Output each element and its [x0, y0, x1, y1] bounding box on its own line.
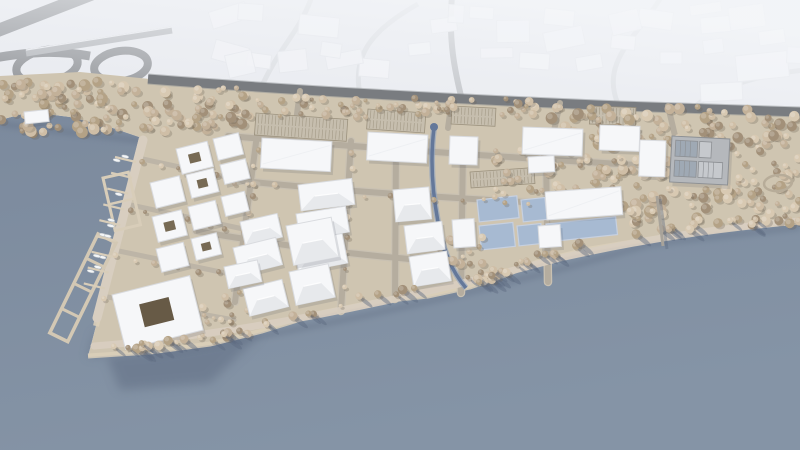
- tree-highlight: [397, 108, 400, 111]
- tree-highlight: [102, 296, 105, 299]
- tree-highlight: [783, 214, 786, 217]
- tree-highlight: [349, 150, 352, 153]
- tree-highlight: [306, 311, 309, 314]
- tree-highlight: [634, 183, 637, 186]
- tree-highlight: [772, 185, 775, 188]
- tree-highlight: [123, 115, 126, 118]
- tree-highlight: [540, 188, 543, 191]
- tree-highlight: [589, 134, 592, 137]
- tree-highlight: [118, 88, 122, 92]
- tree-highlight: [578, 163, 581, 166]
- tree-highlight: [237, 290, 239, 292]
- tree-highlight: [133, 88, 138, 93]
- tree-highlight: [690, 221, 694, 225]
- building-flat: [24, 109, 49, 123]
- tree-highlight: [222, 294, 226, 298]
- tree-highlight: [593, 171, 598, 176]
- tree-highlight: [734, 133, 739, 138]
- tree-highlight: [149, 126, 152, 129]
- tree-highlight: [684, 192, 688, 196]
- tree-highlight: [783, 163, 786, 166]
- tree-highlight: [747, 199, 751, 203]
- tree-highlight: [781, 141, 785, 145]
- tree-highlight: [587, 105, 591, 109]
- tree-highlight: [616, 175, 619, 178]
- tree-highlight: [344, 267, 346, 269]
- tree-highlight: [450, 104, 454, 108]
- tree-highlight: [354, 114, 358, 118]
- tree-highlight: [576, 239, 580, 243]
- building-flat: [599, 125, 640, 151]
- tree-highlight: [161, 127, 166, 132]
- tree-highlight: [783, 207, 786, 210]
- tree-highlight: [234, 86, 237, 89]
- tree-highlight: [466, 275, 468, 277]
- tree-highlight: [748, 191, 752, 195]
- tree-highlight: [527, 202, 529, 204]
- tree-highlight: [479, 260, 483, 264]
- tree-highlight: [218, 115, 221, 118]
- tree-highlight: [573, 185, 576, 188]
- tree-highlight: [343, 285, 345, 287]
- tree-highlight: [282, 108, 286, 112]
- tree-highlight: [474, 275, 479, 280]
- tree-highlight: [32, 95, 36, 99]
- tree-highlight: [611, 176, 615, 180]
- tree-highlight: [597, 165, 602, 170]
- tree-highlight: [105, 106, 108, 109]
- tree-highlight: [91, 118, 96, 123]
- tree-highlight: [772, 161, 775, 164]
- tree-highlight: [784, 134, 787, 137]
- tree-highlight: [164, 100, 169, 105]
- tree-highlight: [230, 313, 233, 316]
- tree-highlight: [769, 131, 774, 136]
- tree-highlight: [525, 260, 528, 263]
- tree-highlight: [631, 199, 637, 205]
- tree-highlight: [793, 170, 796, 173]
- tree-highlight: [143, 210, 145, 212]
- tree-highlight: [761, 216, 766, 221]
- tree-highlight: [207, 99, 211, 103]
- tree-highlight: [788, 122, 793, 127]
- tree-highlight: [559, 162, 562, 165]
- tree-highlight: [745, 138, 750, 143]
- tree-highlight: [351, 104, 353, 106]
- tree-highlight: [746, 113, 751, 118]
- tree-highlight: [422, 109, 426, 113]
- tree-highlight: [80, 80, 86, 86]
- tree-highlight: [227, 113, 232, 118]
- tree-highlight: [666, 105, 671, 110]
- tree-highlight: [210, 337, 213, 340]
- building-flat: [260, 138, 331, 172]
- tree-highlight: [2, 96, 5, 99]
- tree-highlight: [461, 255, 463, 257]
- tree-highlight: [139, 341, 142, 344]
- tree-highlight: [119, 82, 125, 88]
- building-roof: [538, 224, 561, 247]
- tree-highlight: [585, 158, 588, 161]
- tree-highlight: [71, 110, 74, 113]
- tree-highlight: [423, 103, 427, 107]
- tree-highlight: [743, 106, 748, 111]
- tree-highlight: [221, 86, 224, 89]
- tree-highlight: [689, 203, 692, 206]
- tree-highlight: [762, 120, 766, 124]
- tree-highlight: [602, 104, 607, 109]
- tree-highlight: [264, 322, 267, 325]
- tree-highlight: [339, 304, 341, 306]
- tree-highlight: [715, 195, 719, 199]
- tree-highlight: [133, 345, 138, 350]
- tree-highlight: [763, 132, 768, 137]
- tree-highlight: [20, 129, 23, 132]
- tree-highlight: [399, 286, 404, 291]
- tree-highlight: [77, 127, 83, 133]
- tree-highlight: [293, 94, 297, 98]
- tree-highlight: [128, 208, 131, 211]
- tree-highlight: [727, 218, 730, 221]
- tree-highlight: [543, 251, 546, 254]
- tree-highlight: [376, 104, 378, 106]
- parking-structure: [669, 136, 733, 189]
- tree-highlight: [93, 78, 98, 83]
- tree-highlight: [557, 105, 560, 108]
- building-pitched: [393, 187, 432, 222]
- tree-highlight: [242, 110, 246, 114]
- tree-highlight: [701, 113, 707, 119]
- tree-highlight: [251, 182, 254, 185]
- tree-highlight: [196, 106, 200, 110]
- tree-highlight: [52, 87, 57, 92]
- tree-highlight: [718, 134, 721, 137]
- tree-highlight: [448, 237, 452, 241]
- building-roof: [452, 218, 476, 247]
- tree-highlight: [776, 182, 781, 187]
- tree-highlight: [155, 342, 160, 347]
- tree-highlight: [196, 270, 199, 273]
- tree-highlight: [200, 109, 204, 113]
- tree-highlight: [530, 111, 534, 115]
- building-flat: [522, 127, 583, 156]
- tree-highlight: [82, 121, 86, 125]
- tree-highlight: [98, 89, 101, 92]
- masterplan-svg: [0, 0, 800, 450]
- building-roof: [639, 140, 666, 177]
- tree-highlight: [375, 291, 379, 295]
- tree-highlight: [40, 129, 44, 133]
- tree-highlight: [642, 111, 648, 117]
- tree-highlight: [527, 186, 531, 190]
- tree-highlight: [132, 102, 135, 105]
- tree-highlight: [101, 127, 104, 130]
- tree-highlight: [12, 111, 15, 114]
- tree-highlight: [152, 261, 155, 264]
- tree-highlight: [526, 98, 530, 102]
- tree-highlight: [621, 109, 627, 115]
- tree-highlight: [738, 199, 743, 204]
- tree-highlight: [278, 114, 280, 116]
- tree-highlight: [200, 304, 204, 308]
- building-flat: [545, 187, 623, 220]
- tree-highlight: [38, 90, 43, 95]
- tree-highlight: [504, 169, 508, 173]
- tree-highlight: [670, 224, 672, 226]
- building-flat: [452, 218, 476, 247]
- tree-highlight: [675, 104, 681, 110]
- tree-highlight: [237, 328, 240, 331]
- tree-highlight: [753, 217, 756, 220]
- tree-highlight: [515, 176, 519, 180]
- tree-highlight: [353, 97, 357, 101]
- tree-highlight: [228, 320, 230, 322]
- tree-highlight: [603, 166, 608, 171]
- structure-panel: [699, 141, 712, 158]
- tree-highlight: [357, 108, 360, 111]
- tree-highlight: [632, 230, 637, 235]
- tree-highlight: [445, 107, 448, 110]
- tree-highlight: [350, 166, 353, 169]
- tree-highlight: [492, 194, 495, 197]
- tree-highlight: [724, 194, 729, 199]
- tree-highlight: [625, 115, 631, 121]
- tree-highlight: [508, 108, 511, 111]
- tree-highlight: [757, 148, 761, 152]
- tree-highlight: [714, 189, 720, 195]
- tree-highlight: [309, 105, 312, 108]
- tree-highlight: [256, 98, 258, 100]
- tree-highlight: [557, 185, 562, 190]
- tree-highlight: [722, 110, 725, 113]
- tree-highlight: [167, 119, 170, 122]
- tree-highlight: [750, 167, 753, 170]
- tree-highlight: [322, 111, 326, 115]
- tree-highlight: [490, 267, 494, 271]
- tree-highlight: [435, 101, 437, 103]
- tree-highlight: [140, 159, 143, 162]
- tree-highlight: [696, 217, 700, 221]
- tree-highlight: [203, 122, 207, 126]
- tree-highlight: [263, 107, 266, 110]
- tree-highlight: [795, 155, 799, 159]
- tree-highlight: [159, 164, 162, 167]
- tree-highlight: [387, 104, 391, 108]
- tree-highlight: [152, 117, 156, 121]
- tree-highlight: [600, 174, 603, 177]
- tree-highlight: [257, 148, 260, 151]
- tree-highlight: [217, 88, 220, 91]
- tree-highlight: [504, 97, 507, 100]
- tree-highlight: [730, 122, 734, 126]
- tree-highlight: [494, 149, 497, 152]
- structure-panel: [674, 160, 697, 177]
- tree-highlight: [55, 125, 59, 129]
- tree-highlight: [756, 145, 759, 148]
- tree-highlight: [500, 113, 503, 116]
- tree-highlight: [226, 102, 230, 106]
- tree-highlight: [790, 112, 795, 117]
- tree-highlight: [205, 320, 208, 323]
- tree-highlight: [140, 124, 144, 128]
- tree-highlight: [346, 110, 349, 113]
- tree-highlight: [180, 335, 184, 339]
- tree-highlight: [144, 107, 149, 112]
- tree-highlight: [702, 204, 707, 209]
- building-flat: [449, 136, 478, 165]
- tree-highlight: [363, 195, 365, 197]
- tree-highlight: [665, 137, 669, 141]
- tree-highlight: [364, 99, 366, 101]
- tree-highlight: [743, 162, 746, 165]
- tree-highlight: [412, 95, 416, 99]
- tree-highlight: [489, 273, 493, 277]
- tree-highlight: [98, 100, 102, 104]
- tree-highlight: [437, 107, 439, 109]
- tree-highlight: [356, 293, 360, 297]
- tree-highlight: [394, 103, 397, 106]
- tree-highlight: [786, 219, 791, 224]
- tree-highlight: [338, 102, 341, 105]
- tree-highlight: [595, 136, 599, 140]
- tree-highlight: [607, 112, 612, 117]
- tree-highlight: [561, 122, 567, 128]
- tree-highlight: [467, 261, 470, 264]
- tree-highlight: [775, 202, 778, 205]
- tree-highlight: [193, 96, 197, 100]
- tree-highlight: [469, 98, 472, 101]
- tree-highlight: [77, 87, 80, 90]
- water-basin: [521, 197, 547, 221]
- tree-highlight: [501, 179, 504, 182]
- building-pitched: [404, 221, 445, 253]
- tree-highlight: [486, 273, 489, 276]
- tree-highlight: [699, 194, 704, 199]
- tree-highlight: [194, 86, 198, 90]
- tree-highlight: [796, 198, 800, 202]
- tree-highlight: [751, 179, 755, 183]
- tree-highlight: [503, 269, 507, 273]
- tree-highlight: [394, 292, 397, 295]
- tree-highlight: [534, 251, 538, 255]
- tree-highlight: [72, 91, 76, 95]
- tree-highlight: [202, 313, 204, 315]
- tree-highlight: [714, 219, 719, 224]
- tree-highlight: [40, 100, 44, 104]
- tree-highlight: [749, 221, 753, 225]
- tree-highlight: [250, 194, 253, 197]
- tree-highlight: [126, 345, 129, 348]
- tree-highlight: [186, 122, 190, 126]
- tree-highlight: [494, 187, 497, 190]
- tree-highlight: [364, 115, 367, 118]
- tree-highlight: [735, 151, 738, 154]
- tree-highlight: [660, 123, 665, 128]
- tree-highlight: [612, 159, 615, 162]
- tree-highlight: [325, 107, 328, 110]
- tree-highlight: [299, 112, 302, 115]
- tree-highlight: [547, 113, 553, 119]
- tree-highlight: [775, 217, 779, 221]
- tree-highlight: [302, 94, 306, 98]
- tree-highlight: [766, 209, 771, 214]
- tree-highlight: [172, 111, 177, 116]
- tree-highlight: [5, 90, 10, 95]
- tree-highlight: [279, 98, 283, 102]
- tree-highlight: [193, 115, 197, 119]
- building-roof: [599, 125, 640, 151]
- tree-highlight: [596, 117, 599, 120]
- canal-head-pond: [430, 123, 438, 131]
- tree-highlight: [507, 178, 511, 182]
- tree-highlight: [251, 164, 253, 166]
- tree-highlight: [649, 192, 655, 198]
- building-roof: [24, 109, 49, 123]
- tree-highlight: [258, 102, 261, 105]
- tree-highlight: [515, 100, 519, 104]
- tree-highlight: [448, 97, 452, 101]
- tree-highlight: [12, 83, 16, 87]
- tree-highlight: [519, 259, 522, 262]
- tree-highlight: [212, 316, 214, 318]
- tree-highlight: [412, 286, 415, 289]
- tree-highlight: [775, 120, 781, 126]
- tree-highlight: [219, 317, 222, 320]
- tree-highlight: [178, 122, 182, 126]
- tree-highlight: [682, 121, 686, 125]
- tree-highlight: [736, 175, 740, 179]
- tree-highlight: [161, 88, 166, 93]
- tree-highlight: [554, 252, 556, 254]
- tree-highlight: [151, 110, 155, 114]
- tree-highlight: [17, 80, 22, 85]
- tree-highlight: [116, 120, 119, 123]
- tree-highlight: [62, 105, 65, 108]
- tree-highlight: [104, 115, 107, 118]
- tree-highlight: [478, 270, 481, 273]
- tree-highlight: [89, 125, 95, 131]
- tree-highlight: [217, 270, 220, 273]
- tree-highlight: [710, 123, 714, 127]
- masterplan-render: [0, 0, 800, 450]
- tree-highlight: [636, 216, 639, 219]
- tree-highlight: [416, 112, 419, 115]
- tree-highlight: [695, 104, 698, 107]
- tree-highlight: [116, 127, 119, 130]
- tree-highlight: [320, 96, 324, 100]
- tree-highlight: [761, 196, 764, 199]
- tree-highlight: [553, 182, 558, 187]
- tree-highlight: [593, 180, 597, 184]
- tree-highlight: [535, 190, 537, 192]
- tree-highlight: [649, 134, 652, 137]
- tree-highlight: [74, 101, 78, 105]
- tree-highlight: [164, 337, 169, 342]
- tree-highlight: [716, 123, 720, 127]
- tree-highlight: [765, 115, 769, 119]
- building-roof: [528, 156, 555, 173]
- building-flat: [367, 132, 428, 163]
- tree-highlight: [633, 156, 637, 160]
- tree-highlight: [755, 188, 759, 192]
- tree-highlight: [617, 155, 619, 157]
- tree-highlight: [482, 198, 484, 200]
- tree-highlight: [245, 308, 248, 311]
- tree-highlight: [388, 193, 391, 196]
- building-pitched: [286, 217, 339, 265]
- tree-highlight: [518, 147, 522, 151]
- tree-highlight: [514, 262, 516, 264]
